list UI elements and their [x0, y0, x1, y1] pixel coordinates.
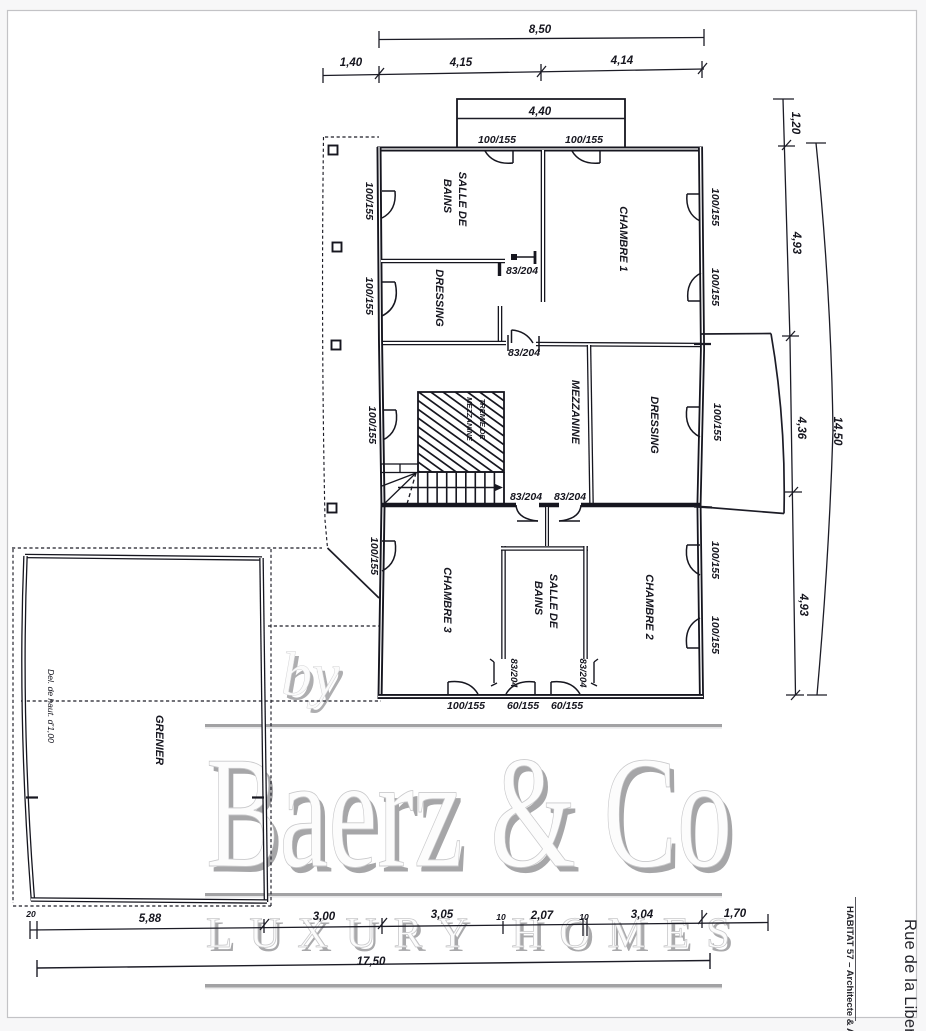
svg-text:Baerz & Co: Baerz & Co [206, 723, 732, 901]
svg-text:3,04: 3,04 [631, 909, 654, 921]
svg-text:3,05: 3,05 [431, 909, 454, 921]
svg-text:100/155: 100/155 [709, 188, 721, 226]
svg-text:Del. de haut. d’1,00: Del. de haut. d’1,00 [46, 669, 56, 743]
svg-text:4,14: 4,14 [610, 55, 634, 67]
svg-text:SALLE DE: SALLE DE [547, 574, 559, 629]
svg-text:4,15: 4,15 [449, 57, 473, 69]
svg-text:GRENIER: GRENIER [153, 715, 165, 765]
svg-text:100/155: 100/155 [478, 134, 516, 146]
svg-text:1,20: 1,20 [789, 112, 801, 135]
svg-text:CHAMBRE 1: CHAMBRE 1 [617, 206, 629, 271]
svg-text:100/155: 100/155 [709, 268, 721, 306]
svg-text:1,40: 1,40 [340, 57, 363, 69]
svg-text:83/204: 83/204 [554, 491, 586, 503]
svg-text:5,88: 5,88 [139, 913, 162, 925]
svg-text:83/204: 83/204 [510, 491, 542, 503]
svg-text:20: 20 [25, 909, 36, 919]
svg-text:MEZZANINE: MEZZANINE [569, 380, 581, 445]
svg-text:100/155: 100/155 [363, 182, 375, 220]
svg-text:DRESSING: DRESSING [648, 396, 660, 454]
svg-text:4,36: 4,36 [795, 416, 807, 440]
svg-text:4,93: 4,93 [790, 231, 802, 255]
svg-text:100/155: 100/155 [447, 700, 485, 712]
svg-text:4,93: 4,93 [797, 593, 809, 617]
svg-text:100/155: 100/155 [709, 616, 721, 654]
svg-text:8,50: 8,50 [529, 24, 552, 36]
svg-text:100/155: 100/155 [366, 406, 378, 444]
svg-text:100/155: 100/155 [368, 537, 380, 575]
svg-text:100/155: 100/155 [711, 403, 723, 441]
svg-text:CHAMBRE 2: CHAMBRE 2 [643, 574, 655, 639]
svg-text:DRESSING: DRESSING [433, 269, 445, 327]
svg-text:100/155: 100/155 [709, 541, 721, 579]
svg-text:Rue de la Libert: Rue de la Libert [901, 919, 919, 1031]
svg-text:83/204: 83/204 [577, 658, 588, 688]
svg-text:60/155: 60/155 [507, 700, 539, 712]
svg-text:100/155: 100/155 [363, 277, 375, 315]
svg-text:3,00: 3,00 [313, 911, 336, 923]
svg-text:10: 10 [579, 912, 589, 922]
svg-text:1,70: 1,70 [724, 908, 747, 920]
svg-text:14,50: 14,50 [831, 417, 843, 446]
svg-text:10: 10 [496, 912, 506, 922]
svg-text:TREMIE DE: TREMIE DE [478, 399, 487, 441]
svg-text:HABITAT 57 – Architecte & A:: HABITAT 57 – Architecte & A: [844, 906, 855, 1031]
svg-text:BAINS: BAINS [441, 179, 453, 214]
svg-text:CHAMBRE 3: CHAMBRE 3 [441, 567, 453, 632]
svg-text:83/204: 83/204 [508, 658, 519, 688]
svg-text:17,50: 17,50 [357, 956, 386, 968]
svg-text:MEZZANINE: MEZZANINE [465, 397, 474, 442]
svg-text:by: by [281, 641, 340, 709]
svg-text:2,07: 2,07 [530, 910, 554, 922]
svg-text:4,40: 4,40 [528, 106, 552, 118]
svg-text:83/204: 83/204 [506, 265, 538, 277]
svg-text:SALLE DE: SALLE DE [456, 172, 468, 227]
svg-text:83/204: 83/204 [508, 347, 540, 359]
svg-text:BAINS: BAINS [532, 581, 544, 616]
svg-text:100/155: 100/155 [565, 134, 603, 146]
svg-text:60/155: 60/155 [551, 700, 583, 712]
